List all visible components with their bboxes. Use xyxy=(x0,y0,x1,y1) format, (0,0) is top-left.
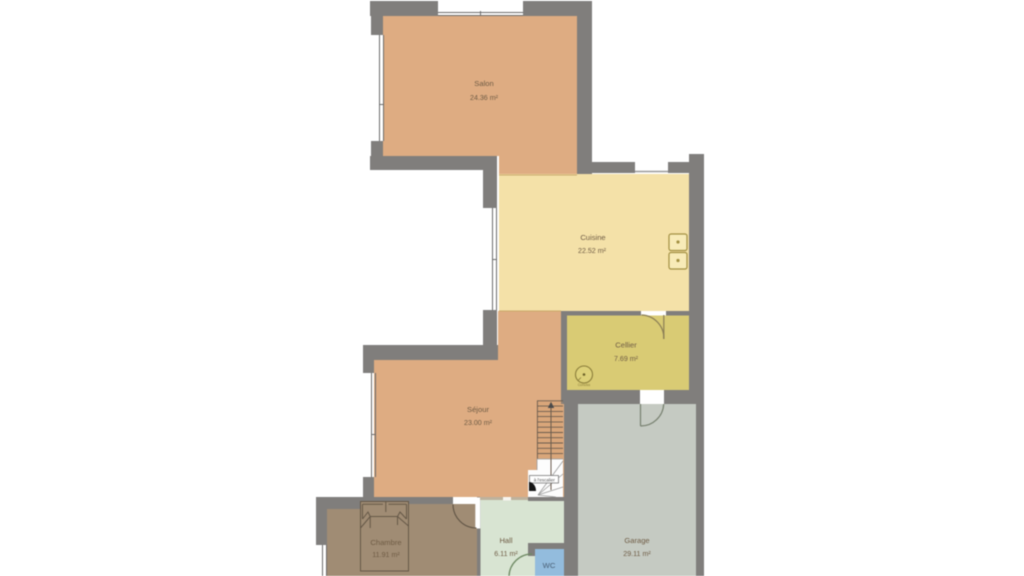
svg-text:11.91 m²: 11.91 m² xyxy=(372,551,400,559)
svg-text:Salon: Salon xyxy=(474,79,493,88)
svg-text:29.11 m²: 29.11 m² xyxy=(623,550,651,558)
svg-text:à l'escalier: à l'escalier xyxy=(534,477,556,482)
svg-text:Cumulus: Cumulus xyxy=(578,383,591,387)
svg-text:6.11 m²: 6.11 m² xyxy=(494,550,518,558)
svg-text:Hall: Hall xyxy=(499,536,512,545)
svg-text:24.36 m²: 24.36 m² xyxy=(470,94,499,102)
svg-text:22.52 m²: 22.52 m² xyxy=(578,247,607,255)
svg-text:Cellier: Cellier xyxy=(615,341,637,350)
svg-text:WC: WC xyxy=(543,561,556,570)
svg-text:Garage: Garage xyxy=(624,536,649,545)
svg-text:23.00 m²: 23.00 m² xyxy=(464,419,493,427)
svg-text:Cuisine: Cuisine xyxy=(580,233,605,242)
svg-text:7.69 m²: 7.69 m² xyxy=(614,355,639,363)
svg-text:Chambre: Chambre xyxy=(370,538,401,547)
svg-text:Séjour: Séjour xyxy=(467,405,489,414)
